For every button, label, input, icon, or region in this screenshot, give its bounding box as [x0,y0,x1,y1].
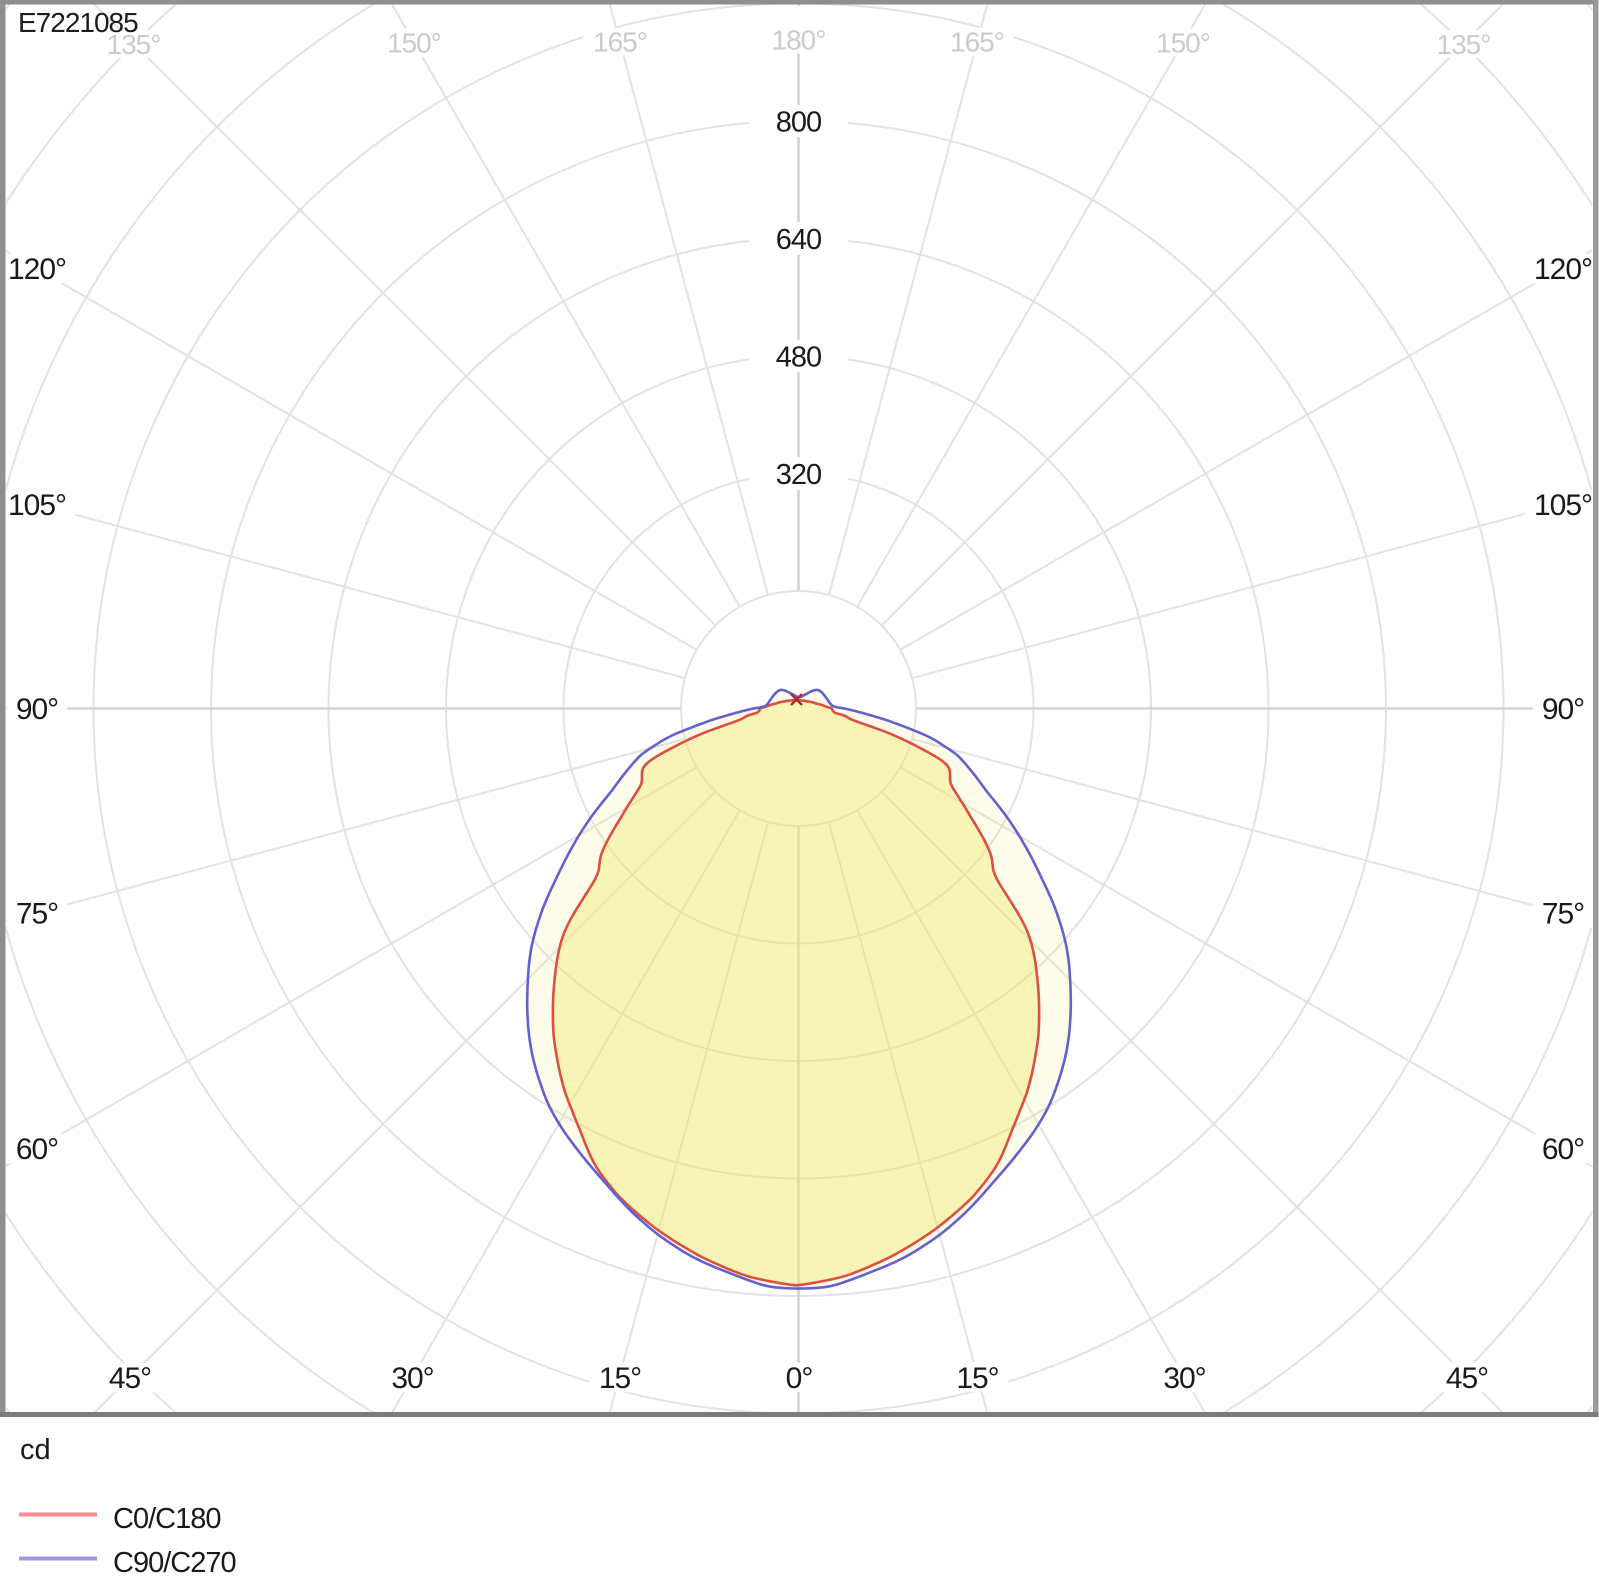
svg-text:90°: 90° [1542,693,1584,726]
svg-text:480: 480 [776,341,821,373]
svg-text:45°: 45° [1446,1362,1488,1395]
svg-text:15°: 15° [956,1362,998,1395]
svg-text:15°: 15° [599,1362,641,1395]
svg-text:75°: 75° [1542,898,1584,931]
svg-text:30°: 30° [1163,1362,1205,1395]
svg-text:C90/C270: C90/C270 [113,1547,236,1579]
svg-text:cd: cd [20,1434,51,1466]
svg-text:320: 320 [776,459,821,491]
svg-text:60°: 60° [16,1133,58,1166]
svg-text:640: 640 [776,224,821,256]
svg-text:E7221085: E7221085 [18,7,138,38]
svg-text:120°: 120° [8,253,66,286]
svg-text:135°: 135° [1437,29,1491,60]
svg-text:60°: 60° [1542,1133,1584,1166]
svg-text:45°: 45° [109,1362,151,1395]
svg-text:105°: 105° [8,489,66,522]
svg-text:30°: 30° [391,1362,433,1395]
svg-text:180°: 180° [772,24,826,55]
svg-text:150°: 150° [387,27,441,58]
svg-text:0°: 0° [786,1362,813,1395]
svg-text:C0/C180: C0/C180 [113,1503,220,1535]
svg-text:165°: 165° [950,26,1004,57]
svg-text:105°: 105° [1534,489,1592,522]
svg-text:120°: 120° [1534,253,1592,286]
svg-text:90°: 90° [16,693,58,726]
svg-text:150°: 150° [1156,27,1210,58]
svg-text:75°: 75° [16,898,58,931]
svg-text:800: 800 [776,106,821,138]
svg-text:165°: 165° [593,26,647,57]
